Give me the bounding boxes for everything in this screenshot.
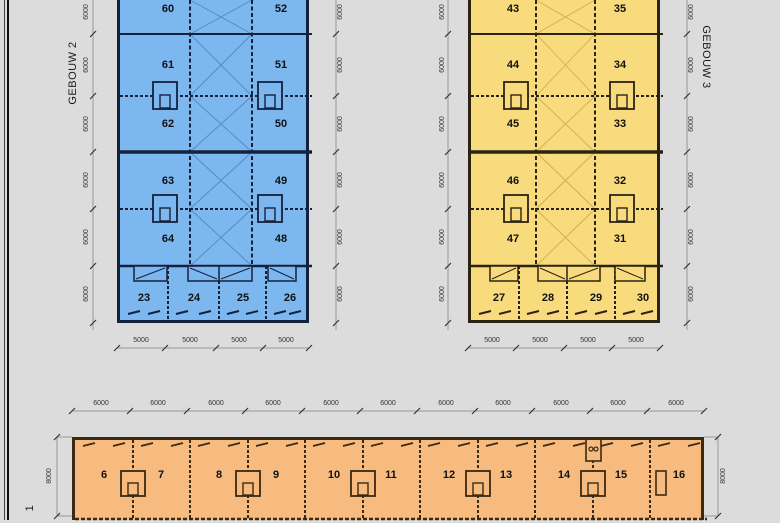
cross-bracing: [190, 0, 252, 266]
unit-63: 63: [153, 174, 183, 188]
unit-62: 62: [153, 117, 183, 131]
unit-15: 15: [606, 468, 636, 482]
dim-label: 6000: [549, 400, 573, 408]
unit-28: 28: [533, 291, 563, 305]
dim-label: 6000: [664, 400, 688, 408]
unit-12: 12: [434, 468, 464, 482]
dim-label: 5000: [576, 337, 600, 345]
dim-label: 6000: [688, 0, 696, 24]
dim-label: 6000: [606, 400, 630, 408]
unit-49: 49: [266, 174, 296, 188]
unit-35: 35: [605, 2, 635, 16]
unit-61: 61: [153, 58, 183, 72]
unit-31: 31: [605, 232, 635, 246]
unit-23: 23: [129, 291, 159, 305]
dim-label: 6000: [439, 282, 447, 306]
unit-30: 30: [628, 291, 658, 305]
unit-44: 44: [498, 58, 528, 72]
dim-label: 6000: [439, 0, 447, 24]
cross-bracing: [536, 0, 595, 266]
dim-label: 6000: [439, 225, 447, 249]
dim-label: 6000: [439, 53, 447, 77]
unit-27: 27: [484, 291, 514, 305]
dim-label: 6000: [83, 282, 91, 306]
unit-48: 48: [266, 232, 296, 246]
dim-label: 6000: [83, 168, 91, 192]
dim-label: 5000: [528, 337, 552, 345]
shaft: [586, 440, 601, 461]
unit-51: 51: [266, 58, 296, 72]
unit-9: 9: [261, 468, 291, 482]
dim-label: 5000: [480, 337, 504, 345]
dim-label: 8000: [720, 464, 728, 488]
dim-label: 5000: [129, 337, 153, 345]
dim-label: 6000: [83, 53, 91, 77]
unit-47: 47: [498, 232, 528, 246]
unit-14: 14: [549, 468, 579, 482]
unit-29: 29: [581, 291, 611, 305]
unit-64: 64: [153, 232, 183, 246]
dim-label: 6000: [89, 400, 113, 408]
dim-label: 6000: [439, 112, 447, 136]
dim-label: 6000: [688, 53, 696, 77]
unit-11: 11: [376, 468, 406, 482]
unit-33: 33: [605, 117, 635, 131]
dim-label: 8000: [46, 464, 54, 488]
unit-13: 13: [491, 468, 521, 482]
gebouw-3-plan-linework: [471, 0, 663, 323]
dim-label: 6000: [337, 53, 345, 77]
dim-label: 6000: [83, 112, 91, 136]
dim-label: 6000: [146, 400, 170, 408]
dim-label: 6000: [204, 400, 228, 408]
entry-recesses: [134, 266, 296, 281]
dim-label: 6000: [261, 400, 285, 408]
dim-label: 6000: [337, 168, 345, 192]
unit-43: 43: [498, 2, 528, 16]
building-gebouw-2: 60 61 62 63 64 52 51 50 49 48 23 24 25 2…: [117, 0, 309, 323]
dim-label: 6000: [491, 400, 515, 408]
dim-label: 6000: [688, 112, 696, 136]
dim-label: 6000: [439, 168, 447, 192]
gebouw-3-label: GEBOUW 3: [700, 17, 712, 97]
building-gebouw-1: 6 7 8 9 10 11 12 13 14 15 16: [72, 437, 704, 520]
dim-label: 5000: [227, 337, 251, 345]
unit-26: 26: [275, 291, 305, 305]
dim-label: 6000: [337, 0, 345, 24]
unit-24: 24: [179, 291, 209, 305]
unit-45: 45: [498, 117, 528, 131]
dim-label: 6000: [688, 168, 696, 192]
dim-label: 6000: [83, 225, 91, 249]
dim-label: 6000: [376, 400, 400, 408]
unit-46: 46: [498, 174, 528, 188]
dim-label: 6000: [434, 400, 458, 408]
dim-label: 5000: [274, 337, 298, 345]
gebouw-2-plan-linework: [120, 0, 312, 323]
dim-label: 5000: [178, 337, 202, 345]
unit-25: 25: [228, 291, 258, 305]
dim-label: 6000: [688, 225, 696, 249]
unit-16: 16: [664, 468, 694, 482]
dim-label: 6000: [337, 282, 345, 306]
door-marks: [128, 311, 301, 314]
gebouw-2-label: GEBOUW 2: [67, 33, 79, 113]
unit-8: 8: [204, 468, 234, 482]
unit-34: 34: [605, 58, 635, 72]
unit-60: 60: [153, 2, 183, 16]
door-marks: [83, 443, 700, 446]
dim-label: 5000: [624, 337, 648, 345]
unit-52: 52: [266, 2, 296, 16]
dim-label: 6000: [83, 0, 91, 24]
dim-label: 6000: [337, 225, 345, 249]
unit-6: 6: [89, 468, 119, 482]
dim-label: 6000: [688, 282, 696, 306]
unit-50: 50: [266, 117, 296, 131]
unit-32: 32: [605, 174, 635, 188]
building-gebouw-3: 43 44 45 46 47 35 34 33 32 31 27 28 29 3…: [468, 0, 660, 323]
entry-recesses: [490, 266, 645, 281]
gebouw-1-label-partial: 1: [24, 498, 36, 518]
unit-10: 10: [319, 468, 349, 482]
dim-label: 6000: [319, 400, 343, 408]
dim-label: 6000: [337, 112, 345, 136]
unit-7: 7: [146, 468, 176, 482]
